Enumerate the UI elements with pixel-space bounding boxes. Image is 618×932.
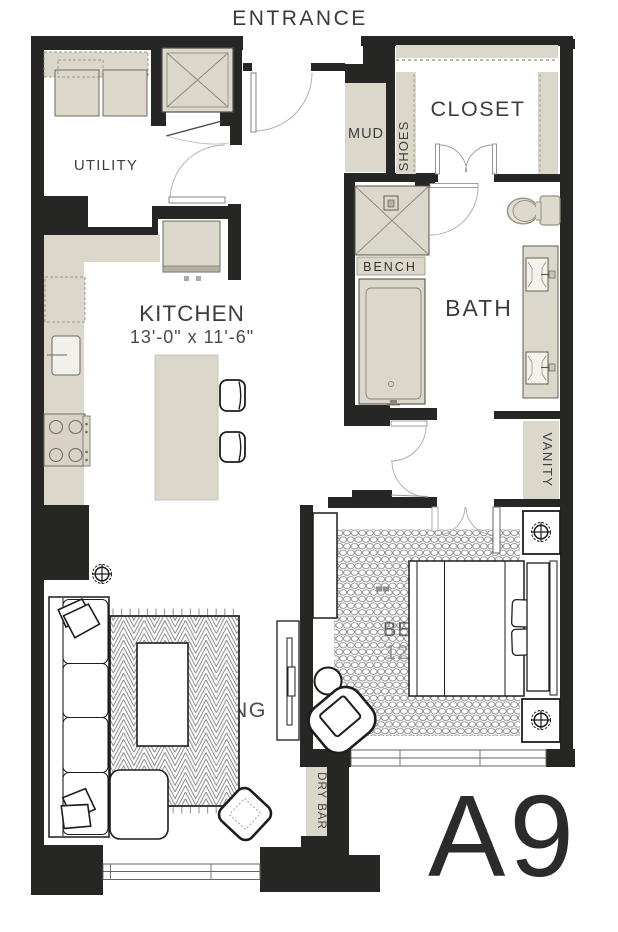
svg-text:SHOES: SHOES bbox=[396, 121, 411, 172]
svg-text:CLOSET: CLOSET bbox=[430, 97, 525, 121]
svg-text:A9: A9 bbox=[428, 771, 578, 901]
svg-text:BENCH: BENCH bbox=[363, 260, 417, 274]
svg-text:DRY BAR: DRY BAR bbox=[315, 772, 327, 830]
svg-text:ENTRANCE: ENTRANCE bbox=[232, 7, 368, 30]
svg-text:KITCHEN: KITCHEN bbox=[139, 301, 245, 326]
svg-text:MUD: MUD bbox=[348, 126, 384, 142]
svg-text:BATH: BATH bbox=[445, 295, 513, 321]
svg-text:13'-0" x 11'-6": 13'-0" x 11'-6" bbox=[130, 327, 254, 347]
svg-text:UTILITY: UTILITY bbox=[74, 157, 138, 174]
svg-text:VANITY: VANITY bbox=[540, 433, 555, 488]
